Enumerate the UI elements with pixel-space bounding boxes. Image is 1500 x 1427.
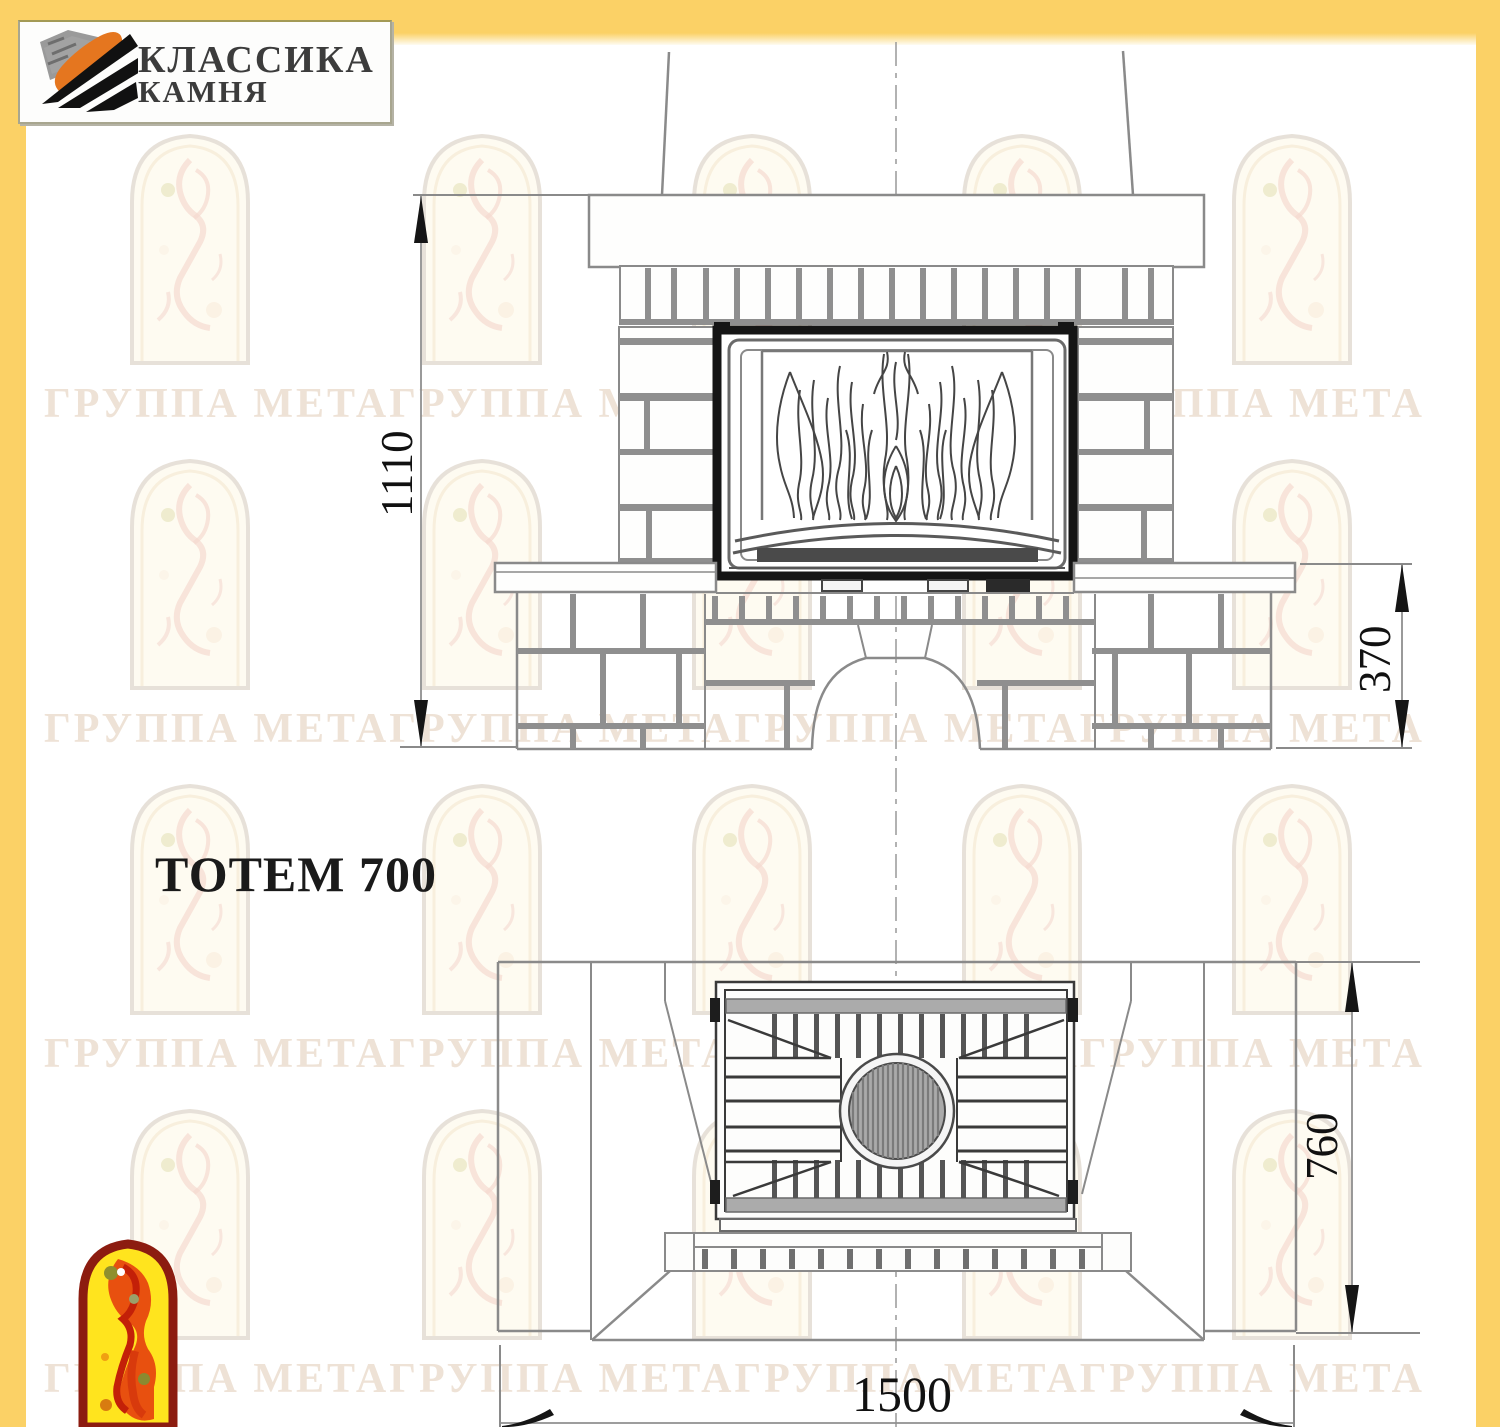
svg-text:1500: 1500 — [852, 1366, 952, 1422]
svg-text:370: 370 — [1350, 626, 1400, 694]
svg-text:1110: 1110 — [372, 430, 422, 517]
svg-text:760: 760 — [1297, 1113, 1347, 1181]
